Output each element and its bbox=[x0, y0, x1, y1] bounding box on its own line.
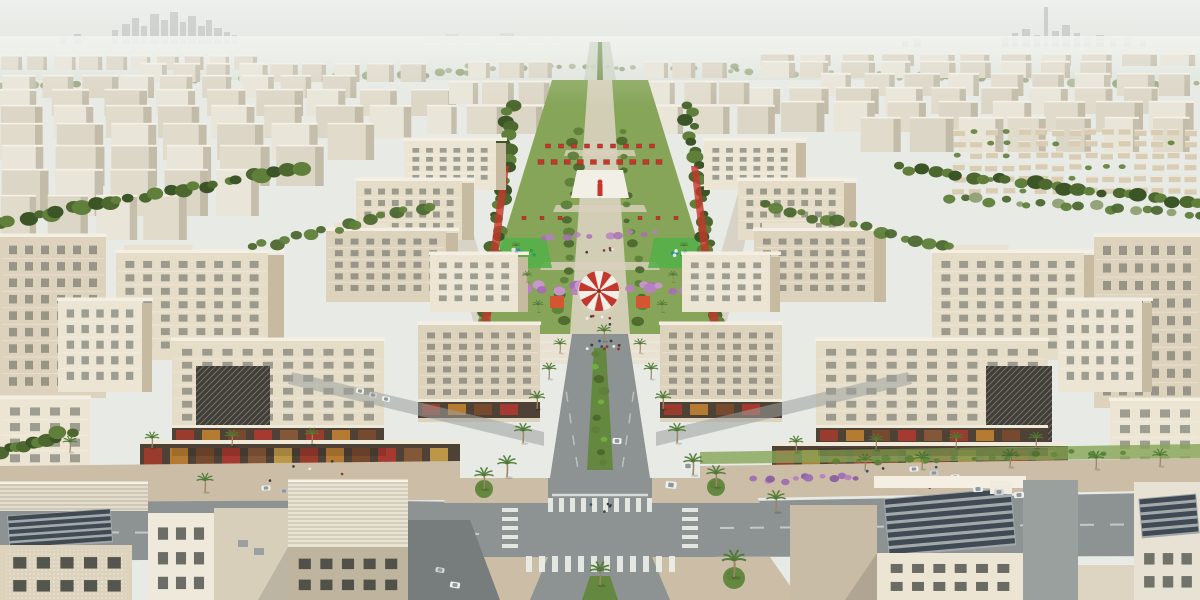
car bbox=[261, 485, 270, 490]
fg-left-bldg-b-windows bbox=[158, 527, 204, 589]
car bbox=[683, 463, 694, 470]
aerial-rendering-image bbox=[0, 0, 1200, 600]
fg-right-wall-a bbox=[877, 553, 1023, 600]
car bbox=[612, 438, 621, 444]
palm-tree-icon bbox=[644, 363, 658, 381]
corner-NW bbox=[444, 478, 548, 503]
park-statue bbox=[598, 180, 603, 197]
car bbox=[279, 488, 288, 493]
shadow-retail-right bbox=[818, 448, 1048, 456]
car bbox=[994, 489, 1004, 496]
fg-right-street bbox=[1023, 480, 1078, 600]
car bbox=[909, 466, 918, 471]
fg-left-slat-roof-a bbox=[0, 482, 148, 512]
palm-tree-icon bbox=[542, 363, 556, 381]
fg-left-wall-d bbox=[288, 547, 408, 600]
play-structure-right bbox=[636, 296, 650, 308]
atmosphere bbox=[0, 36, 1200, 106]
solar-panels bbox=[7, 508, 113, 549]
rendered-scene bbox=[0, 0, 1200, 600]
car bbox=[665, 481, 677, 489]
apartment-building bbox=[1057, 298, 1153, 393]
palm-tree-icon bbox=[497, 455, 516, 479]
solar-panels bbox=[884, 488, 1017, 557]
apartment-building bbox=[429, 252, 529, 313]
fg-right-solar-d bbox=[1138, 494, 1199, 539]
red-canopy-row-1 bbox=[546, 144, 655, 148]
fg-left-slat-roof-d bbox=[288, 480, 408, 548]
fg-right-solar-a bbox=[884, 488, 1017, 557]
play-structure-left bbox=[550, 296, 564, 308]
car bbox=[973, 486, 983, 493]
fg-left-solar-a bbox=[7, 508, 113, 549]
car bbox=[929, 470, 938, 475]
shadow-retail-left bbox=[172, 448, 386, 456]
solar-panels bbox=[1138, 494, 1199, 539]
apartment-building bbox=[57, 298, 153, 393]
fg-right-roof-c bbox=[1078, 565, 1134, 600]
car bbox=[1014, 492, 1024, 499]
apartment-building bbox=[681, 252, 781, 313]
